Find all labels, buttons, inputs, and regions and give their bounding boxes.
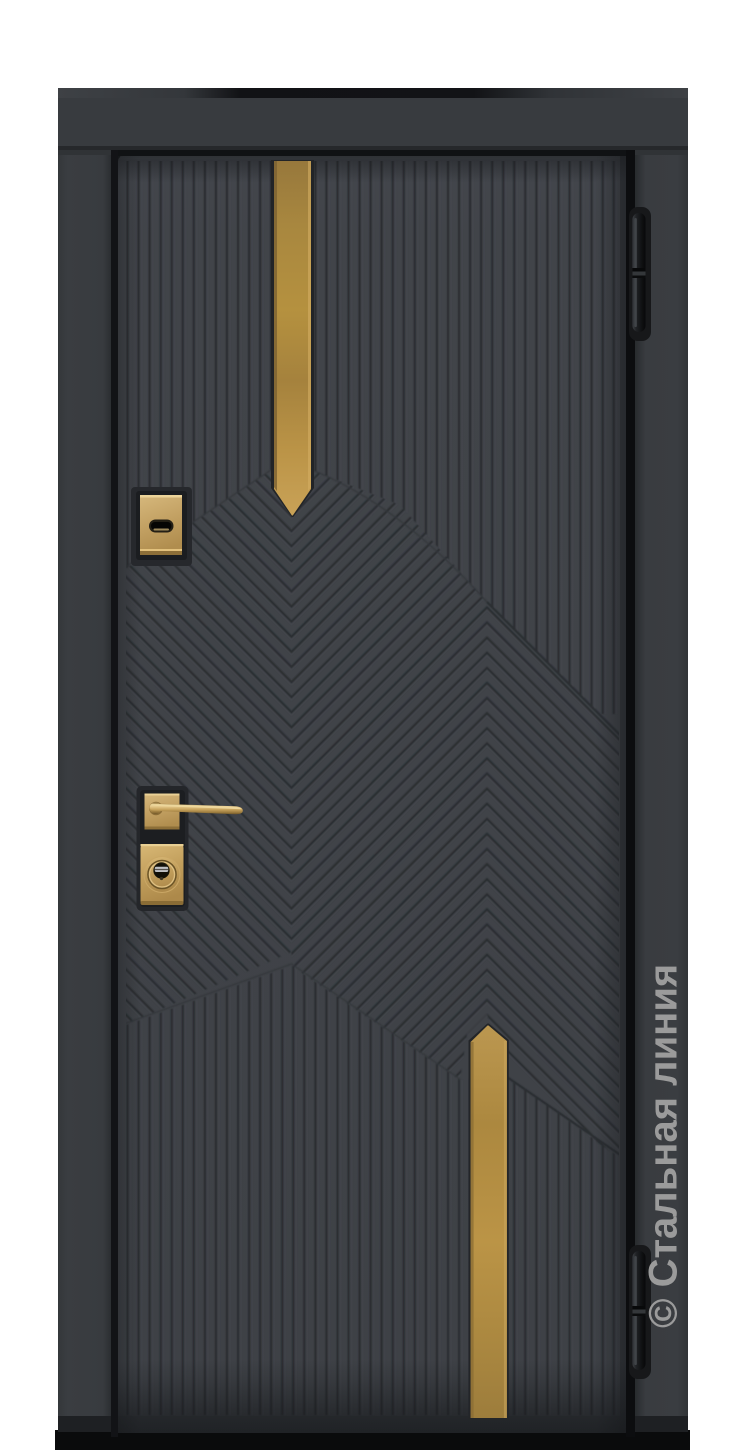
- svg-text:© Стальная линия: © Стальная линия: [642, 964, 686, 1328]
